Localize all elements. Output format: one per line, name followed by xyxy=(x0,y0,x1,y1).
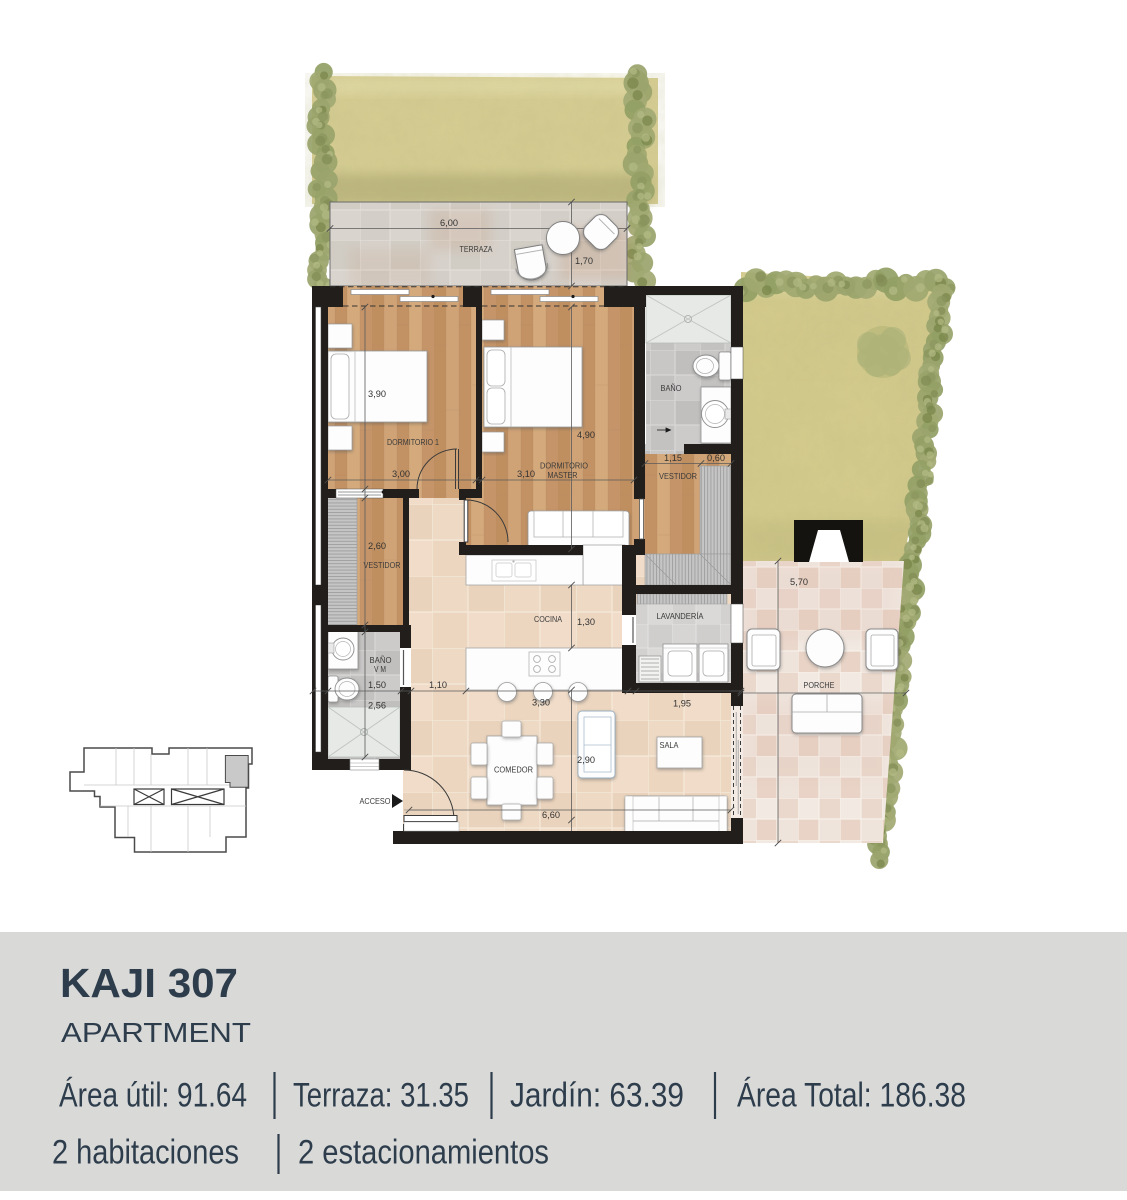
svg-text:2,60: 2,60 xyxy=(368,541,386,552)
svg-text:DORMITORIO 1: DORMITORIO 1 xyxy=(387,437,439,447)
svg-text:3,90: 3,90 xyxy=(368,389,386,400)
svg-text:2 habitaciones: 2 habitaciones xyxy=(52,1134,239,1172)
svg-text:3,30: 3,30 xyxy=(532,698,550,709)
svg-text:1,70: 1,70 xyxy=(575,256,593,267)
svg-text:BAÑO: BAÑO xyxy=(661,383,682,393)
svg-text:2,56: 2,56 xyxy=(368,701,386,712)
svg-text:Jardín: 63.39: Jardín: 63.39 xyxy=(510,1077,684,1115)
svg-text:Área Total: 186.38: Área Total: 186.38 xyxy=(737,1077,966,1115)
svg-text:1,95: 1,95 xyxy=(673,699,691,710)
svg-text:DORMITORIO: DORMITORIO xyxy=(540,461,588,471)
svg-text:TERRAZA: TERRAZA xyxy=(460,244,493,254)
svg-text:4,90: 4,90 xyxy=(577,430,595,441)
svg-text:1,50: 1,50 xyxy=(368,680,386,691)
svg-text:6,00: 6,00 xyxy=(440,218,458,229)
svg-text:PORCHE: PORCHE xyxy=(804,680,835,690)
svg-text:6,60: 6,60 xyxy=(542,810,560,821)
svg-text:COMEDOR: COMEDOR xyxy=(494,765,533,775)
svg-text:3,10: 3,10 xyxy=(517,469,535,480)
svg-text:3,00: 3,00 xyxy=(392,469,410,480)
svg-text:1,10: 1,10 xyxy=(429,680,447,691)
svg-text:5,70: 5,70 xyxy=(790,577,808,588)
svg-text:0,60: 0,60 xyxy=(707,453,725,464)
svg-text:VESTIDOR: VESTIDOR xyxy=(364,560,401,570)
svg-text:1,30: 1,30 xyxy=(577,617,595,628)
svg-text:1,15: 1,15 xyxy=(664,453,682,464)
svg-text:Terraza: 31.35: Terraza: 31.35 xyxy=(293,1077,469,1115)
svg-text:2 estacionamientos: 2 estacionamientos xyxy=(298,1134,549,1172)
svg-text:2,90: 2,90 xyxy=(577,755,595,766)
svg-text:KAJI 307: KAJI 307 xyxy=(60,960,238,1006)
svg-text:COCINA: COCINA xyxy=(534,614,562,624)
svg-text:VESTIDOR: VESTIDOR xyxy=(659,471,697,481)
svg-text:Área útil: 91.64: Área útil: 91.64 xyxy=(59,1077,247,1115)
svg-text:LAVANDERÍA: LAVANDERÍA xyxy=(657,611,704,621)
svg-text:APARTMENT: APARTMENT xyxy=(61,1017,251,1048)
svg-text:MASTER: MASTER xyxy=(548,470,578,480)
svg-text:V M: V M xyxy=(374,664,386,674)
svg-text:ACCESO: ACCESO xyxy=(360,796,391,806)
svg-text:SALA: SALA xyxy=(660,740,679,750)
